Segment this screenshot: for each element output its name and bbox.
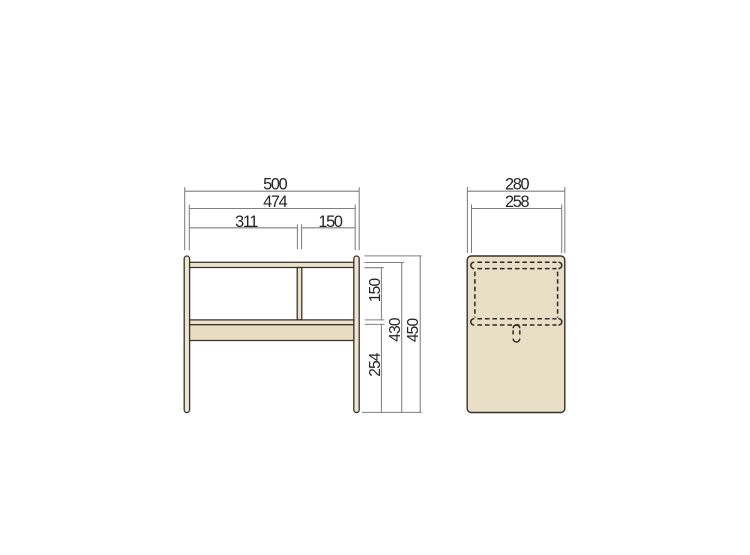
svg-text:150: 150 — [367, 277, 384, 302]
svg-text:150: 150 — [318, 213, 343, 231]
svg-text:450: 450 — [405, 317, 422, 342]
svg-text:500: 500 — [263, 176, 288, 194]
svg-text:430: 430 — [387, 317, 404, 342]
svg-text:254: 254 — [367, 352, 384, 377]
svg-text:280: 280 — [505, 176, 530, 194]
svg-text:258: 258 — [505, 193, 530, 211]
svg-text:474: 474 — [263, 193, 288, 211]
svg-text:311: 311 — [235, 213, 258, 231]
